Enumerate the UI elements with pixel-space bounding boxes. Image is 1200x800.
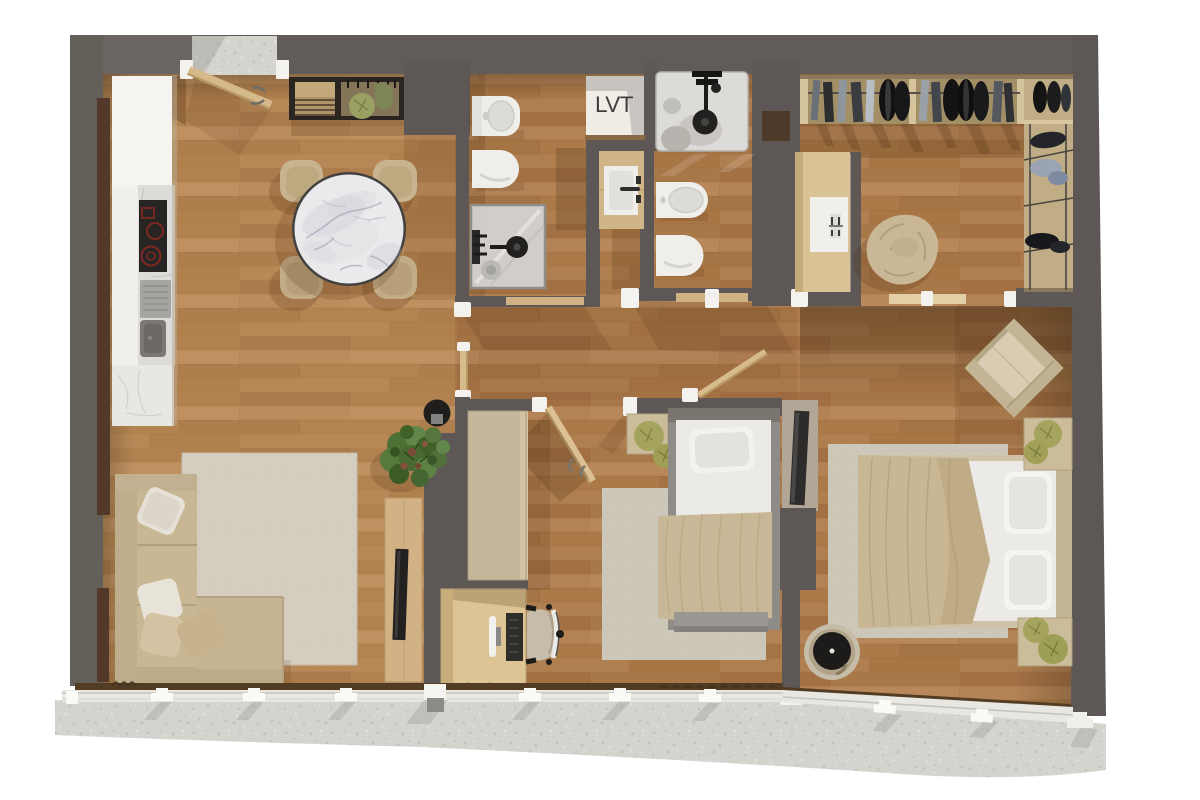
svg-text:LVT: LVT [595,92,634,117]
